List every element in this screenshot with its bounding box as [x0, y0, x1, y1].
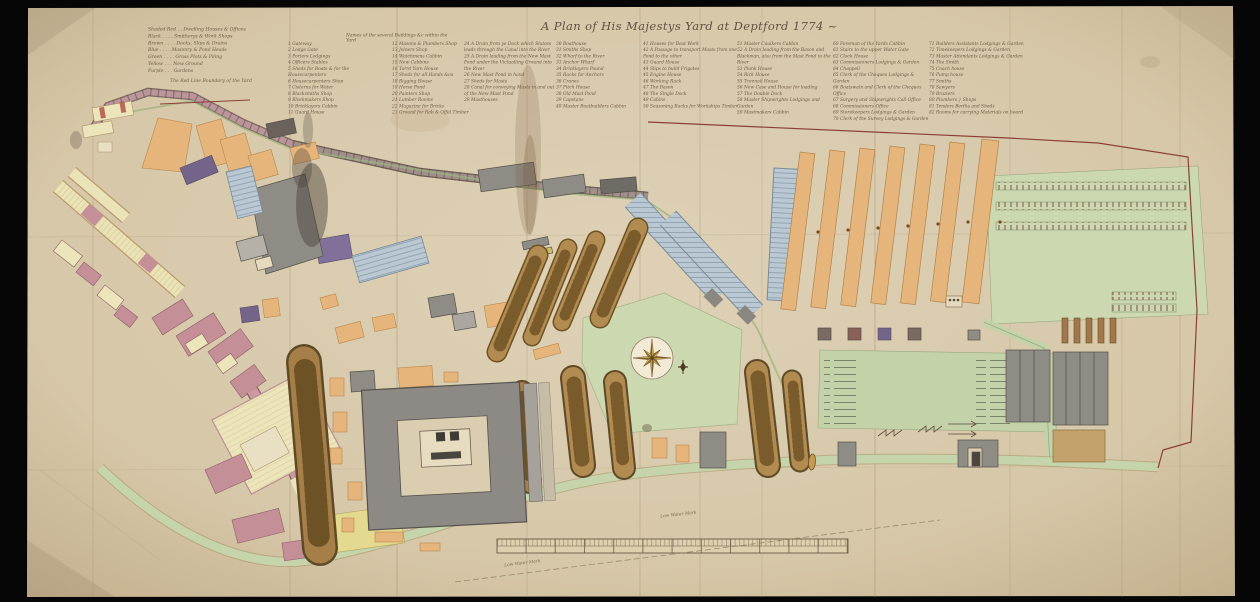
courtyard-building: [420, 429, 472, 468]
slip: [615, 382, 624, 468]
legend-column-7: 60 Foreman of the Yards Cabbin 61 Stairs…: [833, 41, 931, 122]
slip: [792, 380, 800, 462]
tree-row: [1112, 292, 1176, 300]
mast-rack-marks: [824, 354, 858, 426]
tree-row: [996, 222, 1186, 230]
tree-row: [1112, 304, 1176, 312]
legend-column-1: 1 Gateway 2 Lodge Gate 3 Porters Lodging…: [288, 41, 379, 116]
double-dock: [304, 362, 320, 548]
mast-rack-marks: [976, 356, 1010, 428]
map-title: A Plan of His Majestys Yard at Deptford …: [541, 19, 838, 33]
bottom-right-masthouse: [1053, 352, 1108, 425]
slip: [573, 378, 583, 465]
legend-column-3: 24 A Drain from ye Dock which Sluices le…: [464, 41, 559, 103]
color-key-boundary-note: The Red Line Boundary of the Yard: [170, 78, 300, 84]
legend-column-8: 71 Builders Assistants Lodgings & Garden…: [929, 41, 1029, 116]
bottom-right-tan-ground: [1053, 430, 1105, 462]
photographed-map-deptford-plan: { "title": "A Plan of His Majestys Yard …: [0, 0, 1260, 602]
tree-row: [996, 182, 1186, 190]
color-key: Shaded Red . . Dwelling Houses & Offices…: [148, 26, 298, 74]
tree-row: [996, 202, 1186, 210]
legend-column-6: 51 Master Caulkers Cabbin 52 A Drain lea…: [737, 41, 835, 116]
scale-bar: [497, 539, 848, 553]
slip: [757, 372, 768, 465]
legend-column-4: 30 Boathouse 31 Smiths Shop 32 Wharf to …: [556, 41, 639, 110]
legend-column-5: 41 Houses for Boat Work 42 A Passage to …: [643, 41, 738, 110]
